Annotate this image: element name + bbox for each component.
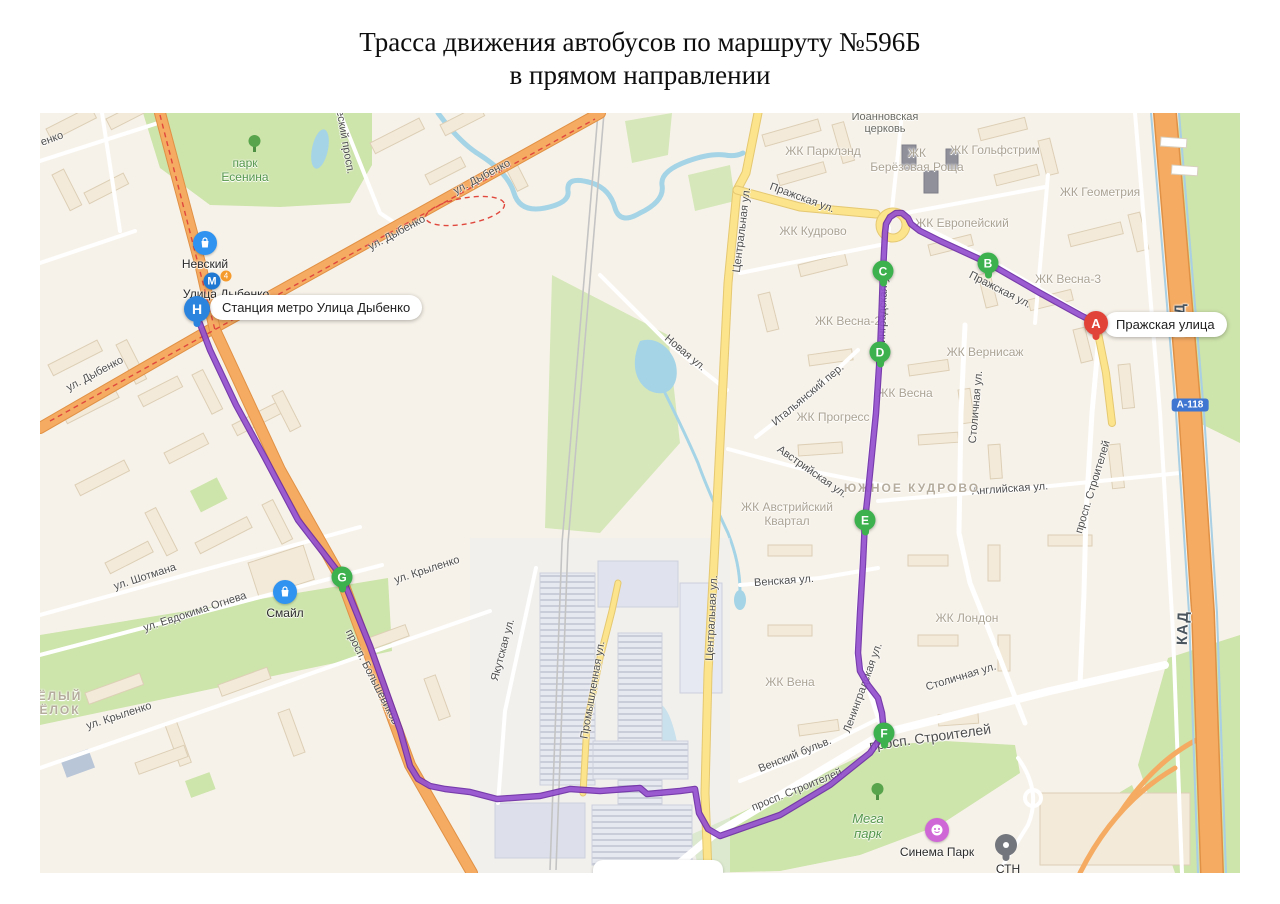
page-title: Трасса движения автобусов по маршруту №5… (0, 26, 1280, 92)
marker-a-end[interactable]: A (1084, 311, 1108, 335)
marker-f[interactable]: F (874, 723, 895, 744)
marker-e[interactable]: E (855, 510, 876, 531)
marker-b[interactable]: B (978, 253, 999, 274)
marker-h-start[interactable]: H (184, 296, 210, 322)
start-balloon[interactable]: Станция метро Улица Дыбенко (210, 295, 422, 320)
marker-g[interactable]: G (332, 567, 353, 588)
marker-d[interactable]: D (870, 342, 891, 363)
markers-layer: Станция метро Улица Дыбенко Пражская ули… (40, 113, 1240, 873)
end-balloon[interactable]: Пражская улица (1104, 312, 1227, 337)
map-canvas[interactable]: ул. Дыбенко ул. Дыбенко ул. Дыбенко ески… (40, 113, 1240, 873)
title-line-1: Трасса движения автобусов по маршруту №5… (0, 26, 1280, 59)
marker-c[interactable]: C (873, 261, 894, 282)
cut-balloon (593, 860, 723, 873)
title-line-2: в прямом направлении (0, 59, 1280, 92)
